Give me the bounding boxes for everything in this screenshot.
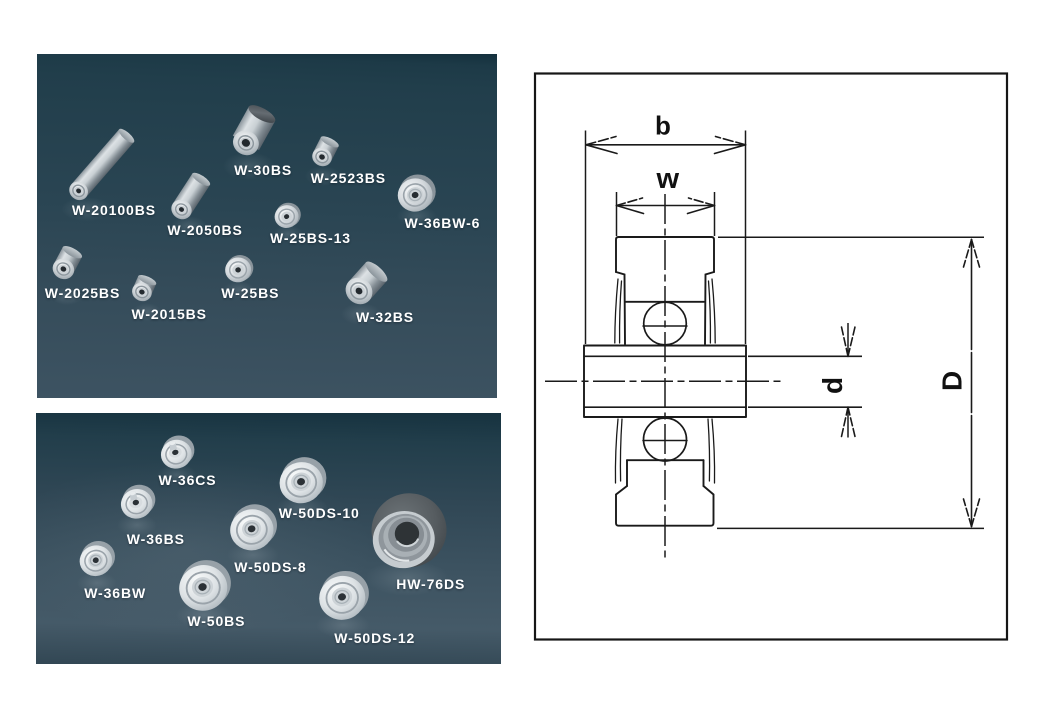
svg-text:w: w [656, 163, 680, 195]
svg-text:b: b [655, 111, 671, 141]
svg-text:D: D [937, 371, 968, 391]
svg-text:d: d [817, 377, 848, 394]
